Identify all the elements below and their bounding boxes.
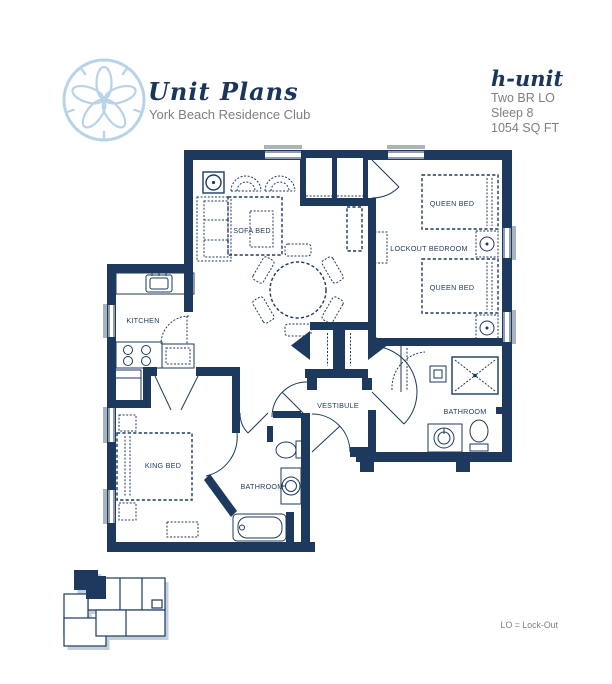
unit-area: 1054 SQ FT — [491, 121, 559, 135]
bathtub — [233, 514, 286, 541]
lockout-bathroom-fixtures — [401, 346, 498, 452]
label-bathroom-lockout: BATHROOM — [444, 407, 487, 416]
label-queen-bed-top: QUEEN BED — [430, 199, 475, 208]
label-lockout-bedroom: LOCKOUT BEDROOM — [390, 244, 468, 253]
legend-lockout-note: LO = Lock-Out — [501, 620, 559, 630]
stove — [116, 342, 162, 368]
kitchen-fixtures — [113, 273, 194, 401]
building-key-plan — [64, 570, 169, 650]
counter — [116, 273, 194, 294]
unit-plan-page: Unit Plans York Beach Residence Club h-u… — [0, 0, 612, 684]
refrigerator — [113, 370, 141, 401]
armchair — [231, 176, 261, 191]
nightstand — [119, 415, 136, 431]
nightstand — [476, 315, 498, 341]
unit-type: Two BR LO — [491, 91, 555, 105]
label-bathroom-main: BATHROOM — [241, 482, 284, 491]
shower — [452, 357, 498, 394]
door-swing-right — [368, 331, 387, 360]
toilet — [276, 441, 302, 458]
nightstand — [476, 231, 498, 257]
label-queen-bed-bottom: QUEEN BED — [430, 283, 475, 292]
label-kitchen: KITCHEN — [126, 316, 159, 325]
bathroom-sink — [281, 468, 301, 504]
unit-name: h-unit — [491, 66, 563, 91]
sofa — [197, 197, 231, 261]
tv-console — [347, 207, 362, 251]
page-subtitle: York Beach Residence Club — [149, 107, 310, 122]
label-sofa-bed: SOFA BED — [233, 226, 271, 235]
bench — [167, 522, 198, 537]
doors — [155, 160, 425, 476]
unit-info-block: h-unit Two BR LO Sleep 8 1054 SQ FT — [491, 66, 563, 135]
brand-logo — [64, 60, 144, 140]
unit-sleeps: Sleep 8 — [491, 106, 533, 120]
bathroom-sink — [428, 424, 462, 452]
armchair — [265, 176, 295, 191]
dining-table — [270, 262, 326, 318]
king-bedroom-furniture — [117, 415, 198, 537]
toilet — [470, 420, 488, 451]
floor-plan-canvas: Unit Plans York Beach Residence Club h-u… — [0, 0, 612, 684]
door-swing-left — [291, 331, 310, 360]
nightstand — [119, 503, 136, 520]
cabinet — [430, 366, 446, 382]
label-king-bed: KING BED — [145, 461, 181, 470]
label-vestibule: VESTIBULE — [317, 401, 359, 410]
page-title: Unit Plans — [148, 77, 299, 106]
